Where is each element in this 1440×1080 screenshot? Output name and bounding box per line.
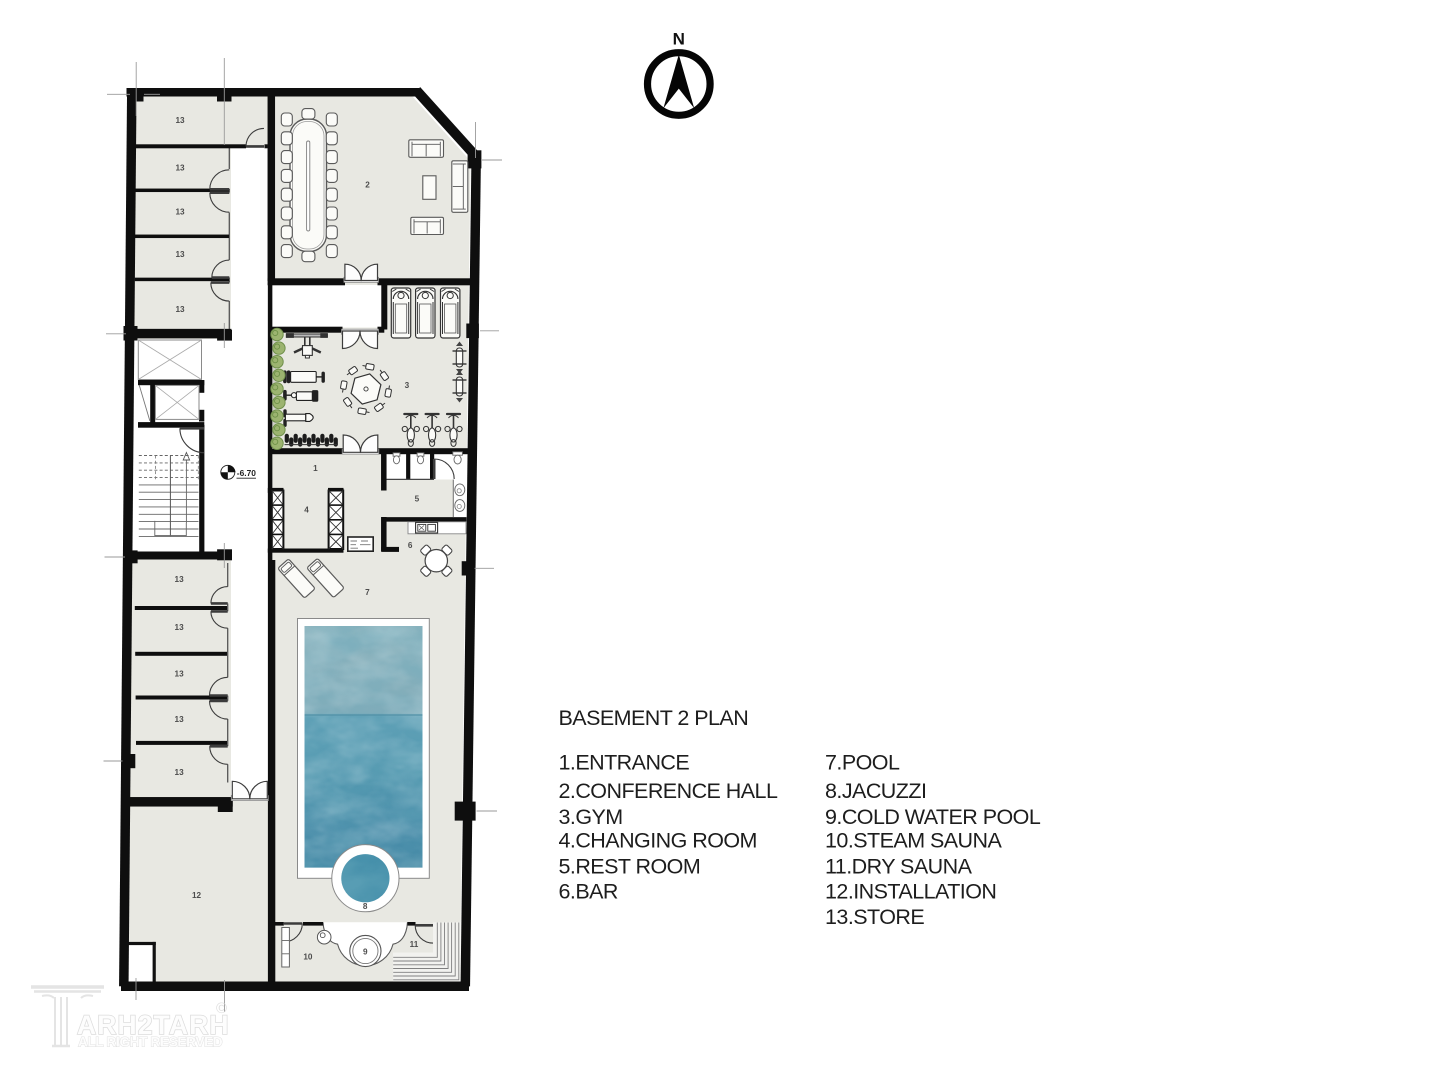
svg-text:1.ENTRANCE: 1.ENTRANCE: [559, 751, 690, 775]
svg-text:2: 2: [365, 180, 370, 189]
svg-text:N: N: [673, 30, 685, 49]
svg-text:4.CHANGING ROOM: 4.CHANGING ROOM: [559, 829, 757, 853]
svg-text:13: 13: [175, 207, 185, 216]
svg-text:6: 6: [408, 541, 413, 550]
svg-text:13: 13: [175, 575, 185, 584]
svg-text:9: 9: [363, 948, 368, 957]
svg-text:10.STEAM SAUNA: 10.STEAM SAUNA: [825, 829, 1003, 853]
svg-text:13: 13: [175, 250, 185, 259]
svg-text:4: 4: [304, 506, 309, 515]
svg-text:11: 11: [410, 940, 419, 949]
svg-text:10: 10: [303, 952, 313, 961]
svg-text:6.BAR: 6.BAR: [559, 880, 618, 904]
svg-text:13: 13: [175, 768, 185, 777]
svg-text:5.REST ROOM: 5.REST ROOM: [559, 855, 701, 879]
svg-text:12: 12: [192, 891, 202, 900]
svg-text:ALL RIGHT RESERVED: ALL RIGHT RESERVED: [78, 1035, 223, 1050]
svg-text:13: 13: [175, 715, 185, 724]
svg-text:2.CONFERENCE HALL: 2.CONFERENCE HALL: [559, 779, 778, 803]
svg-text:13: 13: [175, 305, 185, 314]
svg-text:8: 8: [363, 902, 368, 911]
svg-text:12.INSTALLATION: 12.INSTALLATION: [825, 880, 996, 904]
svg-text:5: 5: [415, 495, 420, 504]
svg-text:11.DRY SAUNA: 11.DRY SAUNA: [825, 855, 973, 879]
svg-text:13: 13: [175, 670, 185, 679]
svg-text:1: 1: [313, 464, 318, 473]
svg-text:-6.70: -6.70: [237, 468, 256, 478]
svg-text:3: 3: [405, 381, 410, 390]
svg-text:BASEMENT 2 PLAN: BASEMENT 2 PLAN: [559, 706, 749, 730]
svg-text:9.COLD WATER POOL: 9.COLD WATER POOL: [825, 805, 1041, 829]
svg-text:13: 13: [175, 623, 185, 632]
svg-text:13.STORE: 13.STORE: [825, 905, 924, 929]
svg-text:7: 7: [365, 588, 370, 597]
svg-text:7.POOL: 7.POOL: [825, 751, 900, 775]
svg-text:13: 13: [175, 164, 185, 173]
svg-text:8.JACUZZI: 8.JACUZZI: [825, 779, 926, 803]
svg-text:13: 13: [175, 116, 185, 125]
svg-text:3.GYM: 3.GYM: [559, 805, 623, 829]
svg-text:©: ©: [216, 1000, 227, 1017]
